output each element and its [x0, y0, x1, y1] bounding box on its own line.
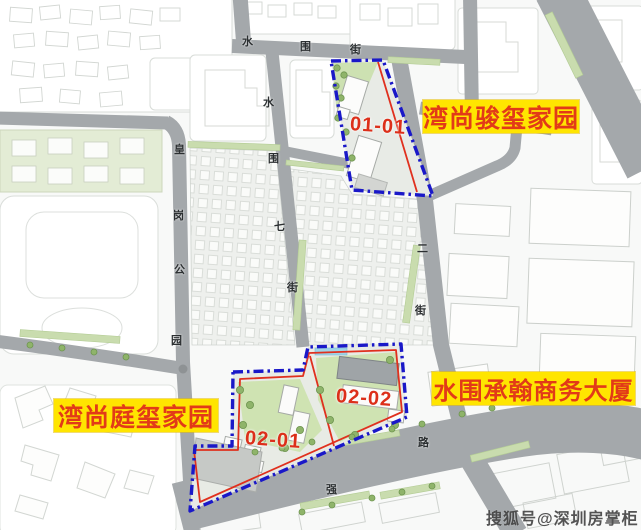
street-huanggang-char: 园: [171, 336, 182, 347]
watermark-sohu: 搜狐号@深圳房掌柜: [486, 505, 639, 529]
site-plan-screenshot: 湾尚骏玺家园 水围承翰商务大厦 湾尚庭玺家园 01-01 02-02 02-01…: [0, 0, 641, 530]
label-shuiwei-chenghan-tower: 水围承翰商务大厦: [432, 372, 635, 405]
street-shuiwei-jie-char: 街: [350, 45, 361, 56]
roundabout: [179, 365, 188, 374]
green-block-left: [0, 130, 162, 192]
site-plan-map: [0, 0, 641, 530]
plot-id-0201: 02-01: [244, 427, 302, 454]
street-huanggang-char: 岗: [173, 211, 184, 222]
label-wanshang-junxi: 湾尚骏玺家园: [423, 100, 579, 133]
street-shuiwei-jie-char: 水: [242, 37, 253, 48]
street-shuiwei-qi-jie-char: 七: [274, 222, 285, 233]
street-shuiwei-qi-jie-char: 围: [268, 154, 279, 165]
street-lu-char: 路: [418, 438, 429, 449]
street-shuiwei-qi-jie-char: 水: [263, 98, 274, 109]
street-er-jie-char: 街: [415, 306, 426, 317]
street-shuiwei-jie-char: 围: [300, 42, 311, 53]
street-qiang-char: 强: [326, 485, 337, 496]
label-wanshang-tingxi: 湾尚庭玺家园: [54, 399, 218, 432]
street-huanggang-char: 皇: [174, 145, 185, 156]
plot-id-0202: 02-02: [335, 385, 393, 412]
plot-id-0101: 01-01: [349, 113, 407, 140]
street-shuiwei-qi-jie-char: 街: [287, 283, 298, 294]
street-er-jie-char: 二: [417, 244, 428, 255]
street-huanggang-char: 公: [174, 265, 185, 276]
